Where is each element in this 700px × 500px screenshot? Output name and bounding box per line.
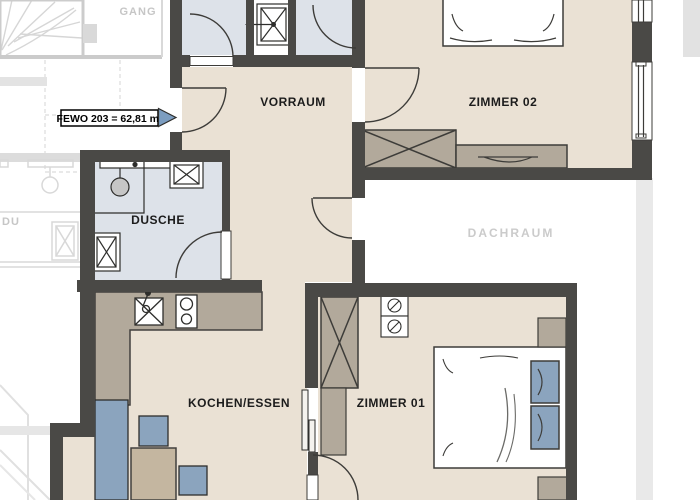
- top-room-left-floor: [182, 0, 246, 55]
- wardrobe-zimmer02: [362, 130, 456, 168]
- nightstand-top: [538, 318, 566, 347]
- windows: [632, 0, 652, 140]
- bed-zimmer02: [443, 0, 563, 46]
- cabinet-zimmer01: [321, 388, 346, 455]
- context-strip-top-right: [683, 0, 700, 57]
- shower-tray: [170, 161, 203, 188]
- stair-newel: [83, 24, 97, 43]
- window-zimmer02-bottom: [632, 62, 652, 140]
- staircase-sketch: [0, 0, 163, 172]
- sideboard-zimmer02: [456, 145, 567, 168]
- dining-table: [131, 448, 176, 500]
- label-dachraum: DACHRAUM: [468, 226, 555, 240]
- wardrobe-zimmer01: [321, 297, 358, 388]
- chair-1: [139, 416, 168, 446]
- label-vorraum: VORRAUM: [260, 95, 326, 109]
- washbasin: [111, 178, 129, 196]
- label-zimmer02: ZIMMER 02: [469, 95, 538, 109]
- label-kochen-essen: KOCHEN/ESSEN: [188, 396, 290, 410]
- vent-symbols: [381, 295, 408, 337]
- kitchen-stove: [176, 295, 197, 328]
- faded-shower-symbol: [52, 222, 78, 260]
- window-zimmer02-top: [632, 0, 652, 22]
- label-zimmer01: ZIMMER 01: [357, 396, 426, 410]
- vorraum-floor: [182, 67, 352, 162]
- label-dusche: DUSCHE: [131, 213, 185, 227]
- label-du: DU: [2, 216, 20, 228]
- corridor-floor: [230, 150, 352, 282]
- unit-area-text: FEWO 203 = 62,81 m²: [57, 113, 163, 125]
- bed-zimmer01: [434, 347, 566, 468]
- bench: [95, 400, 128, 500]
- unit-area-callout: FEWO 203 = 62,81 m²: [57, 109, 176, 127]
- label-gang: GANG: [120, 6, 157, 18]
- washing-machine: [93, 233, 120, 271]
- dachraum-outer-strip: [636, 178, 653, 500]
- chair-2: [179, 466, 207, 495]
- floor-plan-page: GANG DU DACHRAUM VORRAUM ZIMMER 02 DUSCH…: [0, 0, 700, 500]
- floor-plan-drawing: GANG DU DACHRAUM VORRAUM ZIMMER 02 DUSCH…: [0, 0, 700, 500]
- sliding-door: [302, 390, 315, 452]
- nightstand-bottom: [538, 477, 568, 500]
